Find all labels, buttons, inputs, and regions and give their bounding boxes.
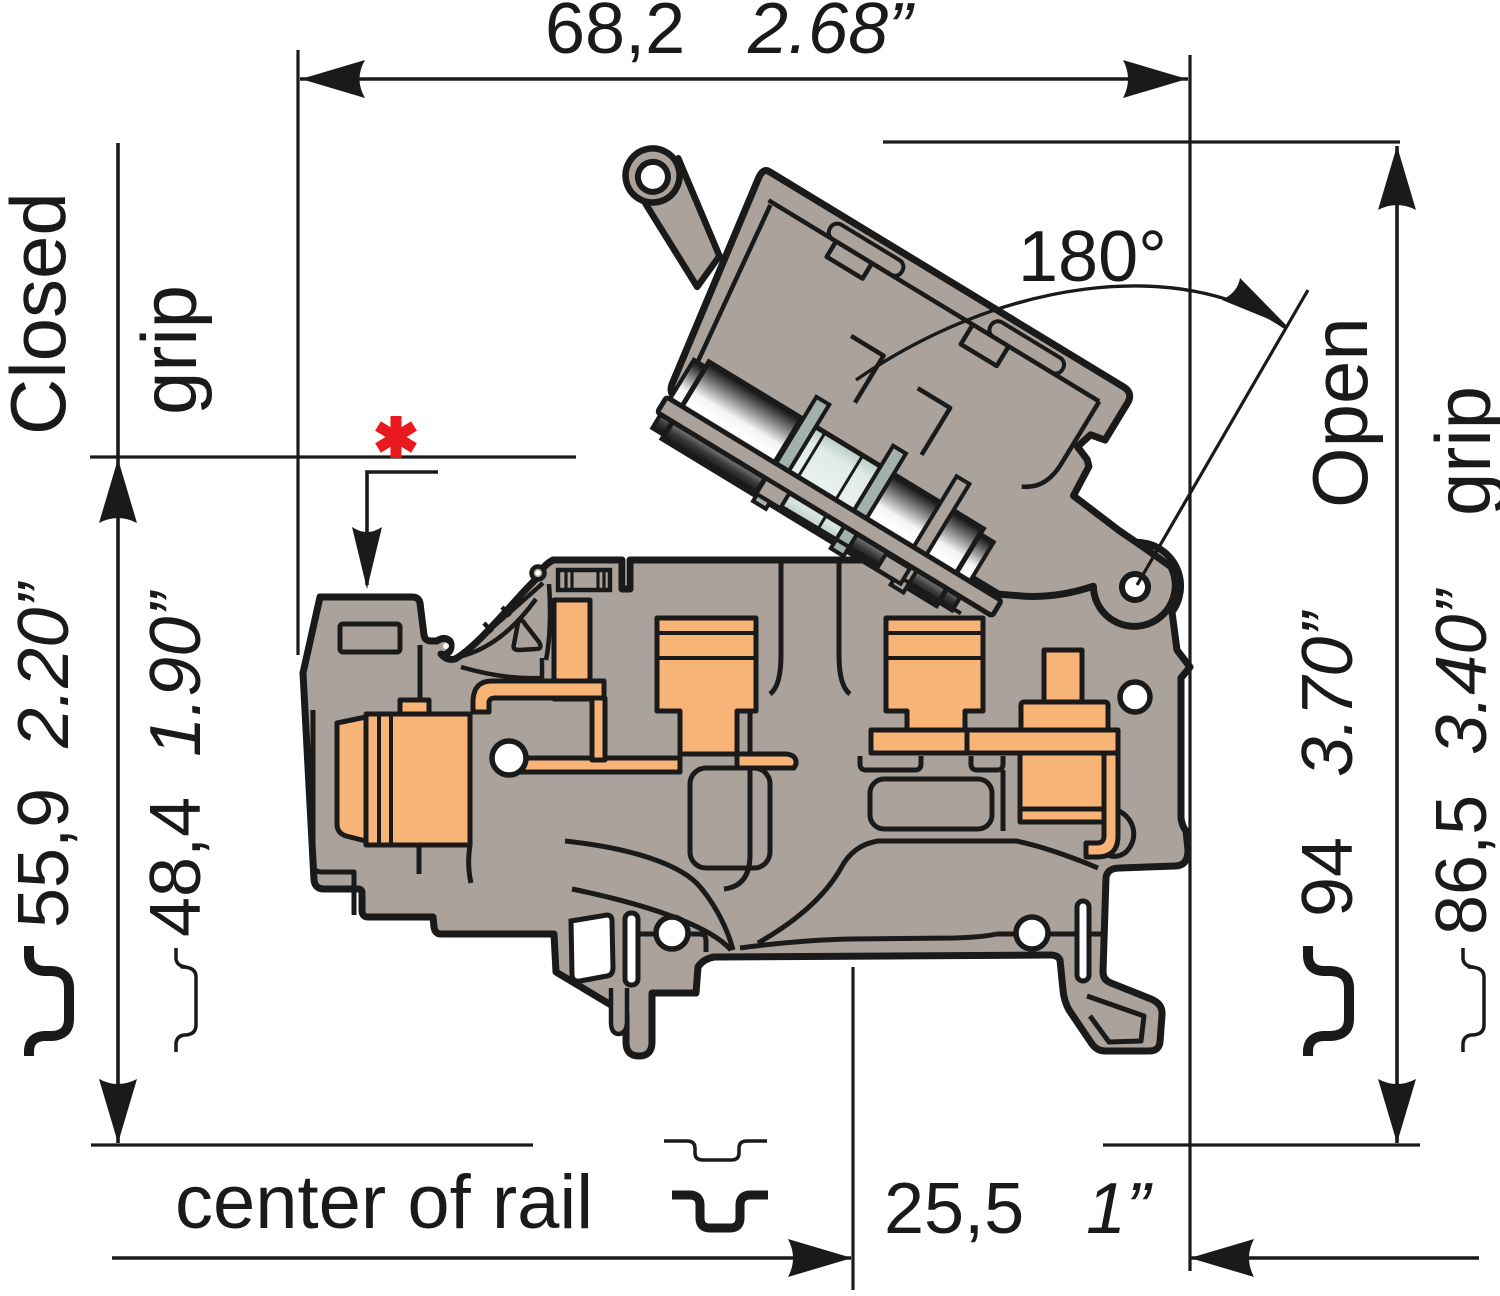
svg-text:2.68”: 2.68” (747, 0, 915, 69)
svg-text:86,5 3.40”: 86,5 3.40” (1422, 588, 1500, 935)
svg-text:Open: Open (1296, 317, 1384, 508)
svg-text:55,9 2.20”: 55,9 2.20” (4, 581, 84, 928)
svg-text:grip: grip (125, 285, 213, 415)
svg-text:48,4 1.90”: 48,4 1.90” (136, 590, 216, 937)
svg-text:Closed: Closed (0, 192, 82, 435)
svg-text:center of rail: center of rail (175, 1160, 593, 1245)
svg-text:grip: grip (1419, 386, 1500, 516)
svg-text:94 3.70”: 94 3.70” (1288, 610, 1368, 917)
svg-text:68,2: 68,2 (545, 0, 685, 69)
svg-text:25,5: 25,5 (884, 1169, 1024, 1249)
svg-text:1”: 1” (1086, 1169, 1153, 1249)
